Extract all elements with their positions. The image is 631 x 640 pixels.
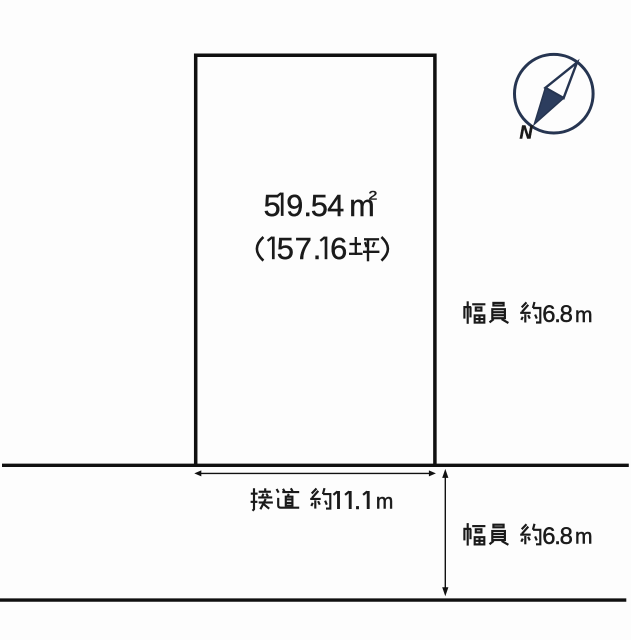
svg-text:6.8: 6.8 bbox=[542, 301, 572, 328]
svg-text:9: 9 bbox=[286, 189, 303, 223]
svg-text:6: 6 bbox=[330, 231, 347, 266]
svg-text:7: 7 bbox=[295, 231, 312, 266]
svg-text:5: 5 bbox=[264, 189, 281, 223]
svg-text:5: 5 bbox=[277, 231, 294, 266]
svg-text:2: 2 bbox=[369, 188, 378, 202]
svg-text:5: 5 bbox=[311, 189, 328, 223]
svg-text:6.8: 6.8 bbox=[542, 523, 572, 550]
svg-text:4: 4 bbox=[327, 189, 344, 223]
svg-text:.: . bbox=[354, 487, 361, 515]
svg-text:N: N bbox=[520, 123, 534, 143]
svg-text:.: . bbox=[313, 231, 322, 266]
svg-text:m: m bbox=[575, 526, 593, 549]
svg-text:m: m bbox=[376, 491, 394, 514]
svg-text:m: m bbox=[575, 304, 593, 327]
